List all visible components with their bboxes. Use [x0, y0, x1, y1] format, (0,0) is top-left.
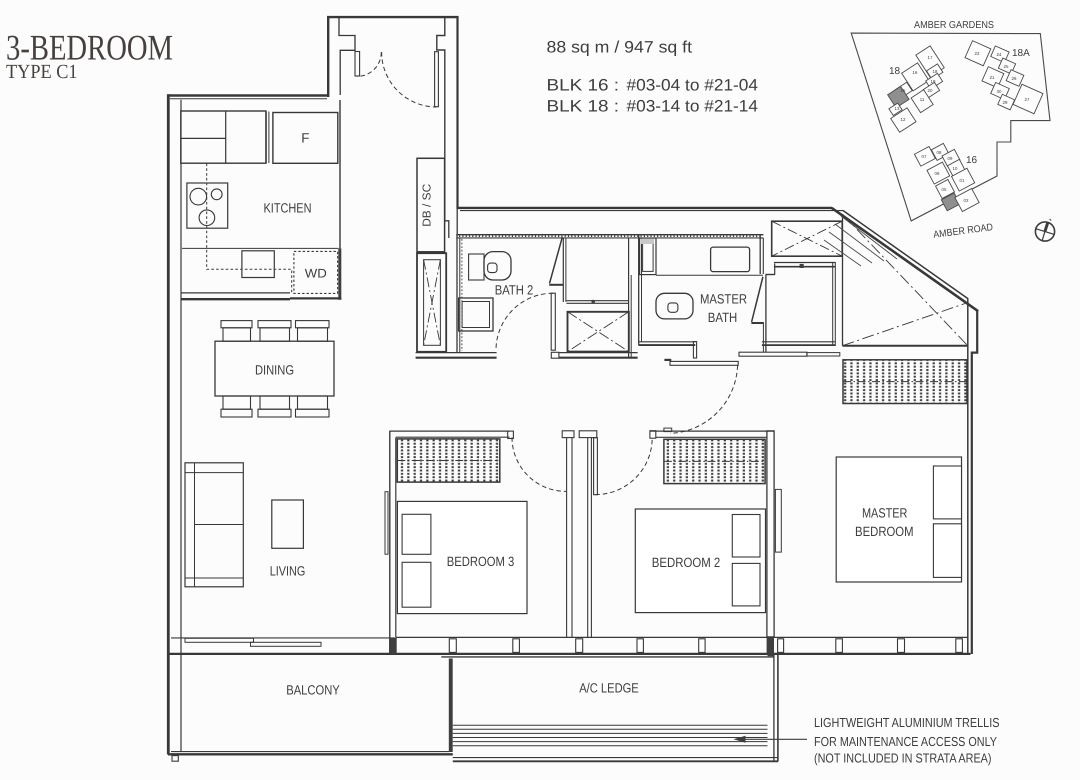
svg-text:08: 08 — [937, 150, 942, 155]
svg-text:DINING: DINING — [255, 362, 294, 377]
svg-text:29: 29 — [1003, 100, 1008, 105]
svg-text:20: 20 — [928, 88, 933, 93]
svg-text:WD: WD — [305, 266, 327, 280]
svg-text:16: 16 — [966, 155, 978, 166]
svg-text:AMBER GARDENS: AMBER GARDENS — [914, 20, 994, 31]
svg-text:03: 03 — [964, 198, 969, 203]
svg-text:10: 10 — [953, 166, 958, 171]
svg-text:AMBER ROAD: AMBER ROAD — [933, 222, 994, 241]
svg-text:18: 18 — [933, 69, 938, 74]
svg-text:88 sq m / 947 sq ft: 88 sq m / 947 sq ft — [547, 38, 693, 57]
svg-text:#03-14 to #21-14: #03-14 to #21-14 — [627, 97, 759, 116]
svg-text:F: F — [301, 130, 309, 145]
svg-text:A/C LEDGE: A/C LEDGE — [579, 681, 639, 696]
svg-text:24: 24 — [997, 52, 1002, 57]
svg-text:DB / SC: DB / SC — [422, 184, 434, 227]
svg-text:12: 12 — [901, 117, 906, 122]
svg-text:27: 27 — [1025, 97, 1030, 102]
svg-text:01: 01 — [960, 178, 965, 183]
svg-text:TYPE C1: TYPE C1 — [6, 61, 78, 83]
svg-text:09: 09 — [948, 156, 953, 161]
svg-text:06: 06 — [935, 171, 940, 176]
svg-text:25: 25 — [1004, 64, 1009, 69]
svg-text:BEDROOM: BEDROOM — [855, 524, 914, 539]
svg-text:MASTER: MASTER — [700, 292, 747, 307]
svg-text:LIGHTWEIGHT ALUMINIUM TRELLIS: LIGHTWEIGHT ALUMINIUM TRELLIS — [814, 715, 1000, 730]
svg-text:22: 22 — [975, 51, 980, 56]
svg-text:MASTER: MASTER — [862, 506, 908, 521]
svg-text:30: 30 — [997, 89, 1002, 94]
svg-text:FOR MAINTENANCE ACCESS ONLY: FOR MAINTENANCE ACCESS ONLY — [814, 734, 997, 749]
svg-text:26: 26 — [1012, 76, 1017, 81]
svg-text:16: 16 — [913, 70, 918, 75]
svg-text:05: 05 — [942, 187, 947, 192]
svg-text:18A: 18A — [1012, 48, 1030, 59]
svg-text:19: 19 — [931, 79, 936, 84]
svg-text:13: 13 — [895, 106, 900, 111]
svg-text:15: 15 — [901, 88, 906, 93]
svg-text:KITCHEN: KITCHEN — [264, 201, 312, 216]
svg-text:BLK 18 :: BLK 18 : — [547, 97, 620, 116]
svg-text:(NOT INCLUDED IN STRATA AREA): (NOT INCLUDED IN STRATA AREA) — [814, 751, 992, 766]
svg-text:BALCONY: BALCONY — [286, 683, 340, 698]
svg-text:21: 21 — [990, 75, 995, 80]
svg-text:#03-04 to #21-04: #03-04 to #21-04 — [627, 76, 759, 95]
svg-text:BATH: BATH — [708, 310, 738, 325]
svg-text:07: 07 — [922, 154, 927, 159]
svg-text:BATH 2: BATH 2 — [495, 282, 534, 297]
svg-text:11: 11 — [920, 97, 925, 102]
svg-text:LIVING: LIVING — [270, 564, 306, 579]
svg-text:BLK 16 :: BLK 16 : — [547, 76, 620, 95]
svg-text:18: 18 — [889, 66, 901, 77]
svg-text:BEDROOM 3: BEDROOM 3 — [447, 554, 515, 569]
svg-text:BEDROOM 2: BEDROOM 2 — [652, 555, 721, 570]
svg-text:17: 17 — [928, 55, 933, 60]
